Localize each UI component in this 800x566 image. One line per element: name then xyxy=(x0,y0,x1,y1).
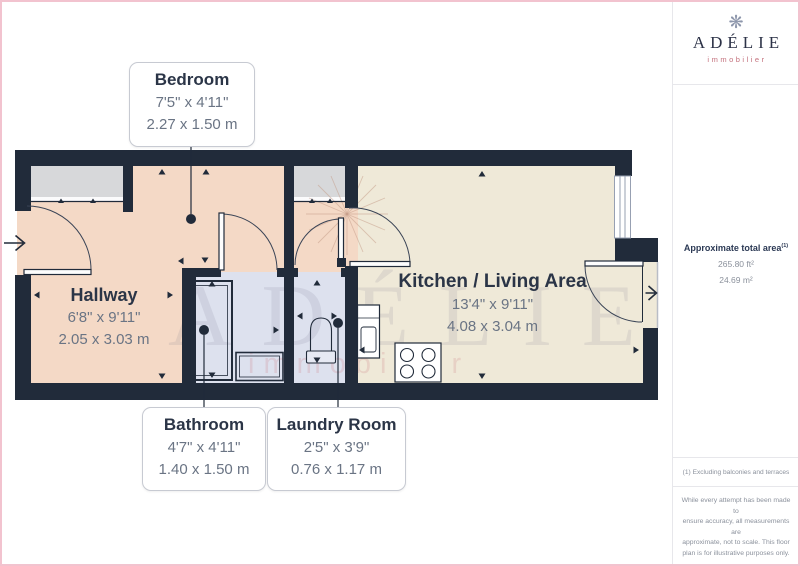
disclaimer-line: plan is for illustrative purposes only. xyxy=(679,549,793,560)
bathroom-dim-imperial: 4'7" x 4'11" xyxy=(143,437,265,459)
floorplan-canvas: ADÉLIE immobilier xyxy=(0,0,672,566)
kitchen-door-arc xyxy=(349,208,410,264)
kitchen-door-leaf xyxy=(350,262,410,267)
dimension-marker xyxy=(297,313,303,320)
disclaimer-line: approximate, not to scale. This floor xyxy=(679,538,793,549)
bathroom-sink xyxy=(236,353,283,381)
disclaimer-line: ensure accuracy, all measurements are xyxy=(679,517,793,538)
laundry-dim-imperial: 2'5" x 3'9" xyxy=(268,437,405,459)
footnote-text: (1) Excluding balconies and terraces xyxy=(683,469,790,476)
total-area-imperial: 265.80 ft² xyxy=(673,259,799,269)
kitchen-dim-metric: 4.08 x 3.04 m xyxy=(375,316,610,338)
dimension-marker xyxy=(634,347,640,354)
kitchen-label: Kitchen / Living Area 13'4" x 9'11" 4.08… xyxy=(375,270,610,338)
bathroom-sink-inner xyxy=(240,356,280,377)
agency-name: ADÉLIE xyxy=(673,33,799,53)
entry-door-arc xyxy=(27,206,91,270)
toilet-bowl xyxy=(311,318,332,351)
exit-arrow-icon xyxy=(646,286,657,300)
laundry-leader-dot xyxy=(333,318,343,328)
total-area-metric: 24.69 m² xyxy=(673,275,799,285)
bedroom-leader-dot xyxy=(186,214,196,224)
laundry-dim-metric: 0.76 x 1.17 m xyxy=(268,459,405,481)
bathroom-door-leaf xyxy=(219,213,224,270)
bedroom-name: Bedroom xyxy=(130,68,254,92)
footnote-block: (1) Excluding balconies and terraces xyxy=(673,457,799,487)
agency-logo: ❋ ADÉLIE immobilier xyxy=(673,12,799,64)
dimension-marker xyxy=(479,374,486,380)
closet-track-tick xyxy=(327,199,333,204)
bathroom-label-box: Bathroom 4'7" x 4'11" 1.40 x 1.50 m xyxy=(142,407,266,491)
hallway-dim-imperial: 6'8" x 9'11" xyxy=(29,307,179,329)
shower-inner xyxy=(191,286,228,376)
hallway-label: Hallway 6'8" x 9'11" 2.05 x 3.03 m xyxy=(29,283,179,351)
shower xyxy=(186,281,232,380)
bathroom-leader-dot xyxy=(199,325,209,335)
kitchen-dim-imperial: 13'4" x 9'11" xyxy=(375,294,610,316)
laundry-door-leaf xyxy=(339,218,344,265)
snowflake-icon: ❋ xyxy=(673,12,799,32)
agency-tagline: immobilier xyxy=(673,55,799,64)
entry-door-leaf xyxy=(24,270,91,275)
dimension-marker xyxy=(178,258,184,265)
closet-track-tick xyxy=(309,199,315,204)
total-area-title: Approximate total area(1) xyxy=(673,243,799,253)
laundry-label-box: Laundry Room 2'5" x 3'9" 0.76 x 1.17 m xyxy=(267,407,406,491)
bedroom-dim-metric: 2.27 x 1.50 m xyxy=(130,114,254,136)
bedroom-dim-imperial: 7'5" x 4'11" xyxy=(130,92,254,114)
closet-track-tick xyxy=(90,199,96,204)
window xyxy=(615,176,631,238)
dimension-marker xyxy=(314,280,321,286)
closet-track-tick xyxy=(58,199,64,204)
dimension-marker xyxy=(274,327,280,334)
entry-arrow-icon xyxy=(4,236,25,251)
dimension-marker xyxy=(479,171,486,177)
floorplan-page: ADÉLIE immobilier xyxy=(0,0,800,566)
kitchen-name: Kitchen / Living Area xyxy=(375,270,610,294)
dimension-marker xyxy=(159,374,166,380)
disclaimer-line: While every attempt has been made to xyxy=(679,496,793,517)
hallway-dim-metric: 2.05 x 3.03 m xyxy=(29,329,179,351)
info-panel: ❋ ADÉLIE immobilier Approximate total ar… xyxy=(672,0,799,566)
exit-door-leaf xyxy=(585,261,643,266)
footnote-ref: (1) xyxy=(781,243,788,249)
hallway-name: Hallway xyxy=(29,283,179,307)
bedroom-label-box: Bedroom 7'5" x 4'11" 2.27 x 1.50 m xyxy=(129,62,255,147)
total-area-label: Approximate total area xyxy=(684,243,782,253)
bathroom-door-arc xyxy=(221,214,277,270)
laundry-door-hinge xyxy=(337,258,346,267)
bathroom-dim-metric: 1.40 x 1.50 m xyxy=(143,459,265,481)
laundry-name: Laundry Room xyxy=(268,413,405,437)
dimension-marker xyxy=(203,169,210,175)
divider xyxy=(673,84,799,85)
dimension-marker xyxy=(202,258,209,264)
laundry-door-arc xyxy=(295,219,341,265)
total-area-block: Approximate total area(1) 265.80 ft² 24.… xyxy=(673,243,799,285)
disclaimer-block: While every attempt has been made to ens… xyxy=(679,496,793,566)
toilet-tank xyxy=(307,351,336,363)
dimension-marker xyxy=(159,169,166,175)
bathroom-name: Bathroom xyxy=(143,413,265,437)
